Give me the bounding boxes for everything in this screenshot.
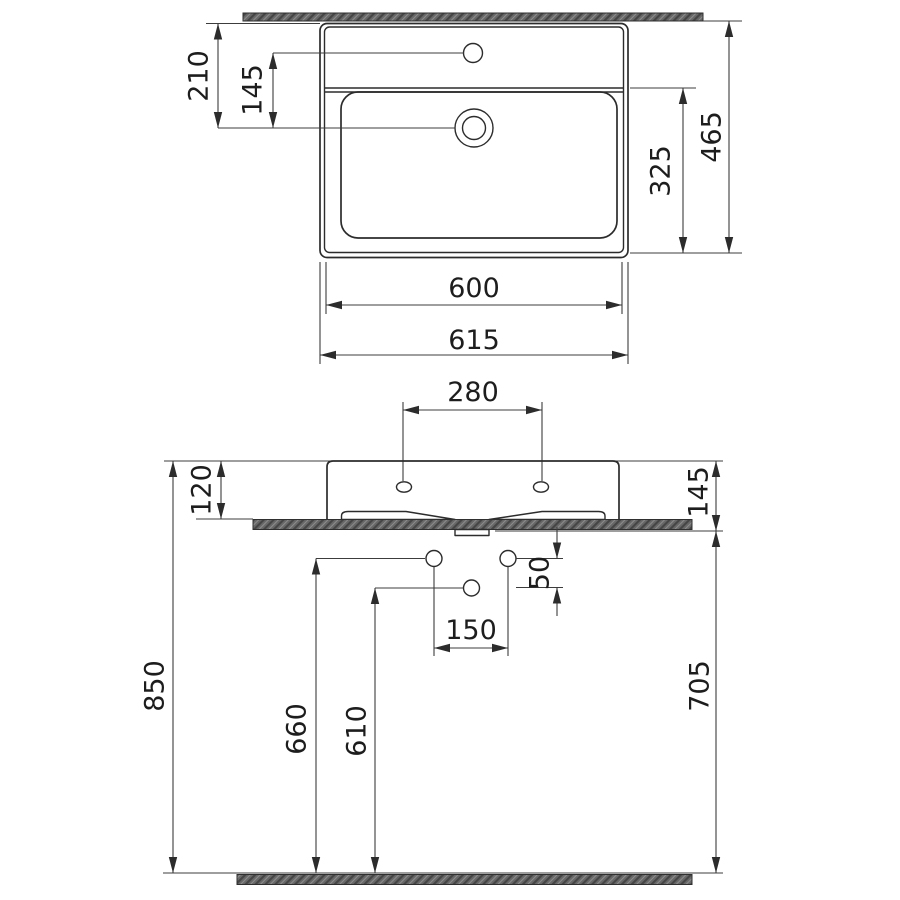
basin-underside-right-wedge <box>489 512 605 520</box>
dim-label-145-front: 145 <box>684 466 715 518</box>
technical-drawing-page: 210 145 325 465 600 615 280 <box>0 0 900 900</box>
basin-outline-plan <box>320 24 628 258</box>
dim-label-465: 465 <box>697 111 728 163</box>
drain-stub <box>455 530 489 536</box>
counter-section-hatch <box>253 520 692 530</box>
floor-section-hatch <box>237 875 692 885</box>
dim-label-600: 600 <box>448 273 500 304</box>
mounting-hole-left-icon <box>397 482 412 492</box>
dim-label-610: 610 <box>342 705 373 757</box>
bowl-outline-plan <box>341 92 617 238</box>
dim-label-325: 325 <box>646 145 677 197</box>
front-view: 280 50 150 120 850 660 <box>140 377 724 885</box>
supply-connection-right-icon <box>500 551 516 567</box>
basin-outline-front <box>327 461 619 520</box>
faucet-hole-icon <box>464 44 483 63</box>
drain-outer-circle-icon <box>455 109 493 147</box>
supply-connection-left-icon <box>426 551 442 567</box>
mounting-hole-right-icon <box>534 482 549 492</box>
dim-label-50: 50 <box>525 556 556 590</box>
wall-section-hatch <box>243 13 703 21</box>
technical-drawing-canvas: 210 145 325 465 600 615 280 <box>0 0 900 900</box>
dim-label-120: 120 <box>187 464 218 516</box>
dim-label-210: 210 <box>184 50 215 102</box>
dim-label-705: 705 <box>685 660 716 712</box>
dim-label-660: 660 <box>282 703 313 755</box>
drain-connection-icon <box>464 580 480 596</box>
drain-inner-circle-icon <box>463 117 486 140</box>
dim-label-615: 615 <box>448 325 500 356</box>
dim-label-145-plan: 145 <box>238 64 269 116</box>
plan-view: 210 145 325 465 600 615 <box>184 13 743 364</box>
basin-underside-left-wedge <box>342 512 456 520</box>
dim-label-850: 850 <box>140 660 171 712</box>
dim-label-150: 150 <box>445 615 497 646</box>
dim-label-280: 280 <box>447 377 499 408</box>
